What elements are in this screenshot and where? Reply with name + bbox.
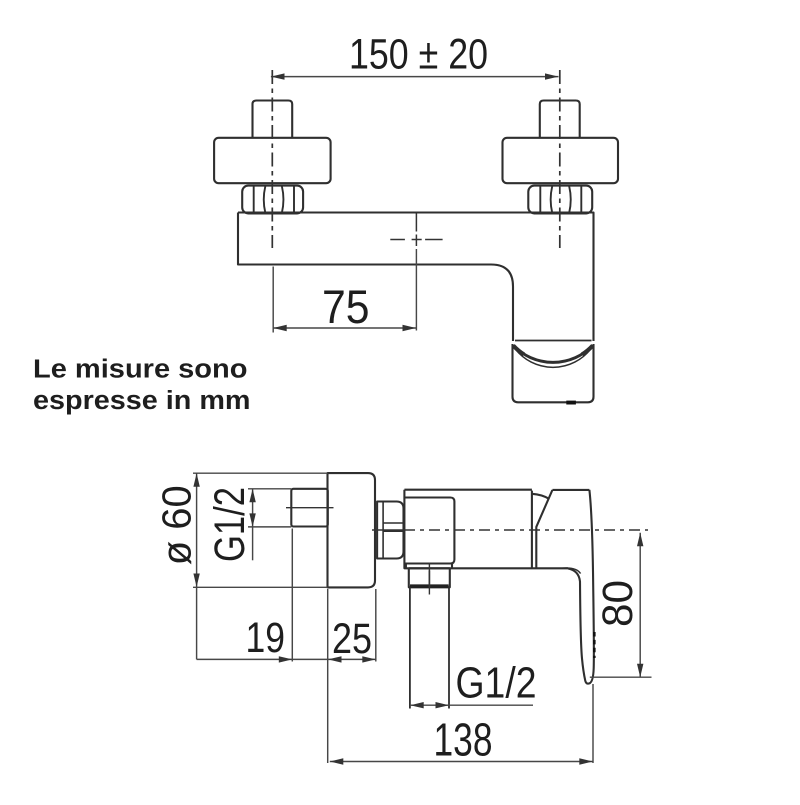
svg-text:150 ± 20: 150 ± 20 [349,31,488,79]
svg-text:75: 75 [322,280,370,333]
svg-text:138: 138 [434,714,493,766]
svg-text:Le misure sono: Le misure sono [33,356,248,384]
svg-text:G1/2: G1/2 [206,487,254,562]
svg-text:espresse in mm: espresse in mm [33,387,251,415]
svg-text:G1/2: G1/2 [456,659,537,708]
svg-text:25: 25 [332,615,372,663]
svg-text:19: 19 [246,614,286,662]
svg-text:ø 60: ø 60 [154,485,200,565]
svg-text:80: 80 [594,580,642,627]
